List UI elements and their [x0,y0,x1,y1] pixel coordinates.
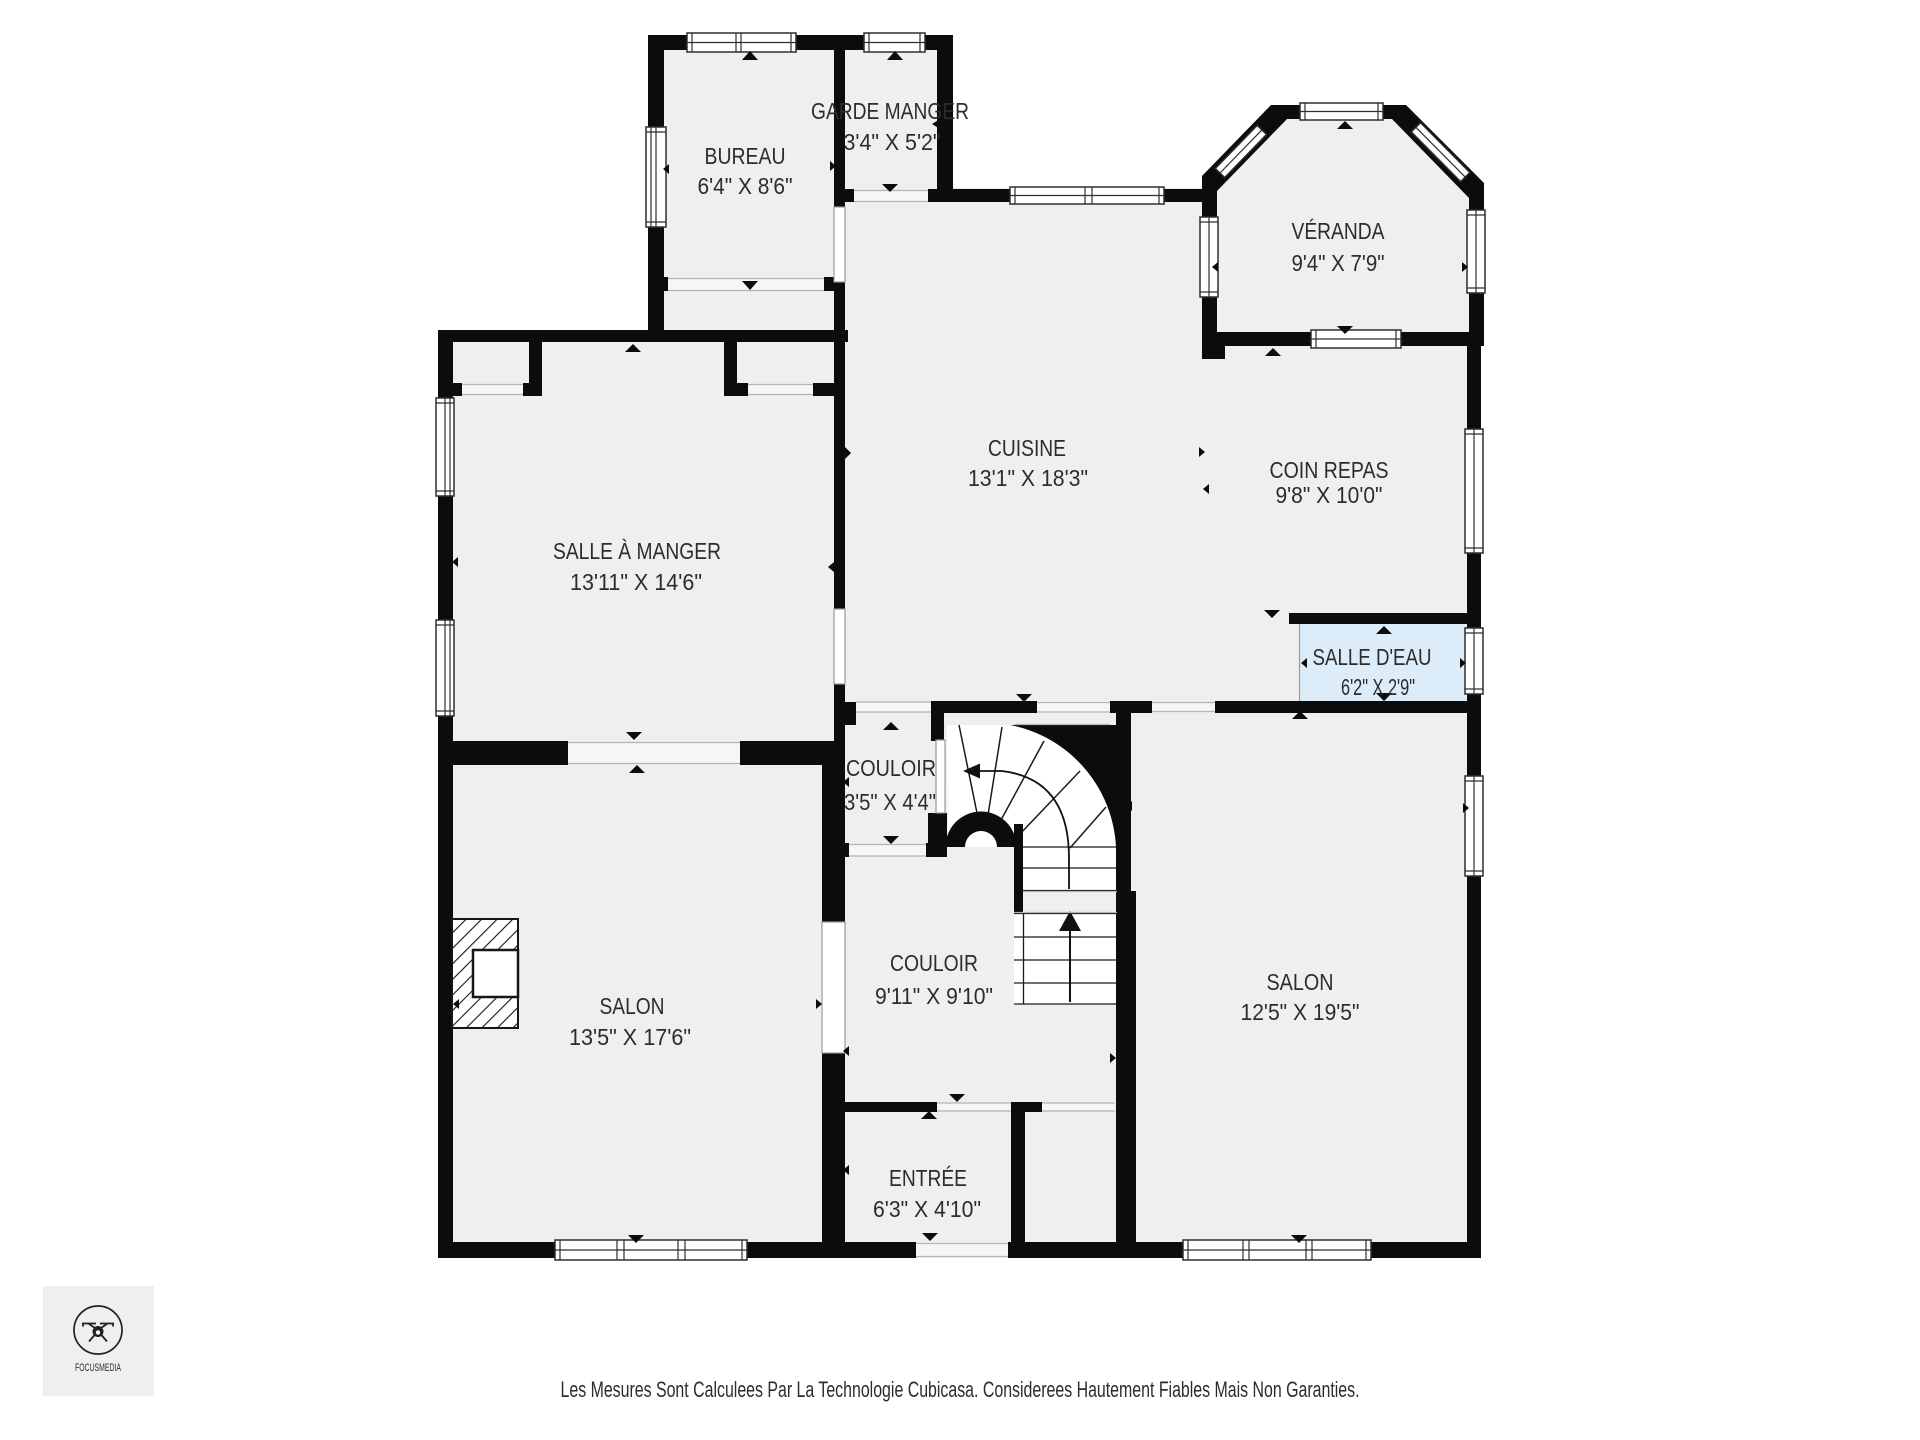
svg-text:SALLE D'EAU: SALLE D'EAU [1313,644,1432,670]
svg-text:6'4" X 8'6": 6'4" X 8'6" [698,173,793,199]
svg-text:9'11" X 9'10": 9'11" X 9'10" [875,983,993,1009]
svg-text:Les Mesures Sont Calculees Par: Les Mesures Sont Calculees Par La Techno… [561,1377,1360,1402]
svg-text:13'5" X 17'6": 13'5" X 17'6" [569,1024,691,1050]
svg-text:COULOIR: COULOIR [846,755,936,781]
svg-text:6'2" X 2'9": 6'2" X 2'9" [1341,674,1415,700]
svg-text:12'5" X 19'5": 12'5" X 19'5" [1241,999,1360,1025]
svg-text:FOCUSMEDIA: FOCUSMEDIA [75,1362,121,1374]
svg-text:CUISINE: CUISINE [988,435,1066,461]
svg-text:ENTRÉE: ENTRÉE [889,1165,967,1191]
svg-text:GARDE MANGER: GARDE MANGER [811,98,969,124]
svg-text:9'4" X 7'9": 9'4" X 7'9" [1292,250,1385,276]
svg-text:3'5" X 4'4": 3'5" X 4'4" [844,789,936,815]
svg-text:13'1" X 18'3": 13'1" X 18'3" [968,465,1088,491]
svg-text:COIN REPAS: COIN REPAS [1270,457,1389,483]
svg-text:SALON: SALON [1267,969,1334,995]
svg-text:6'3" X 4'10": 6'3" X 4'10" [873,1196,981,1222]
svg-text:SALLE À MANGER: SALLE À MANGER [553,538,721,564]
svg-text:VÉRANDA: VÉRANDA [1292,218,1386,244]
svg-text:3'4" X 5'2": 3'4" X 5'2" [844,129,941,155]
svg-text:BUREAU: BUREAU [705,143,786,169]
svg-text:9'8" X 10'0": 9'8" X 10'0" [1276,482,1383,508]
svg-text:COULOIR: COULOIR [890,950,978,976]
svg-text:SALON: SALON [600,993,665,1019]
svg-text:13'11" X 14'6": 13'11" X 14'6" [570,569,702,595]
